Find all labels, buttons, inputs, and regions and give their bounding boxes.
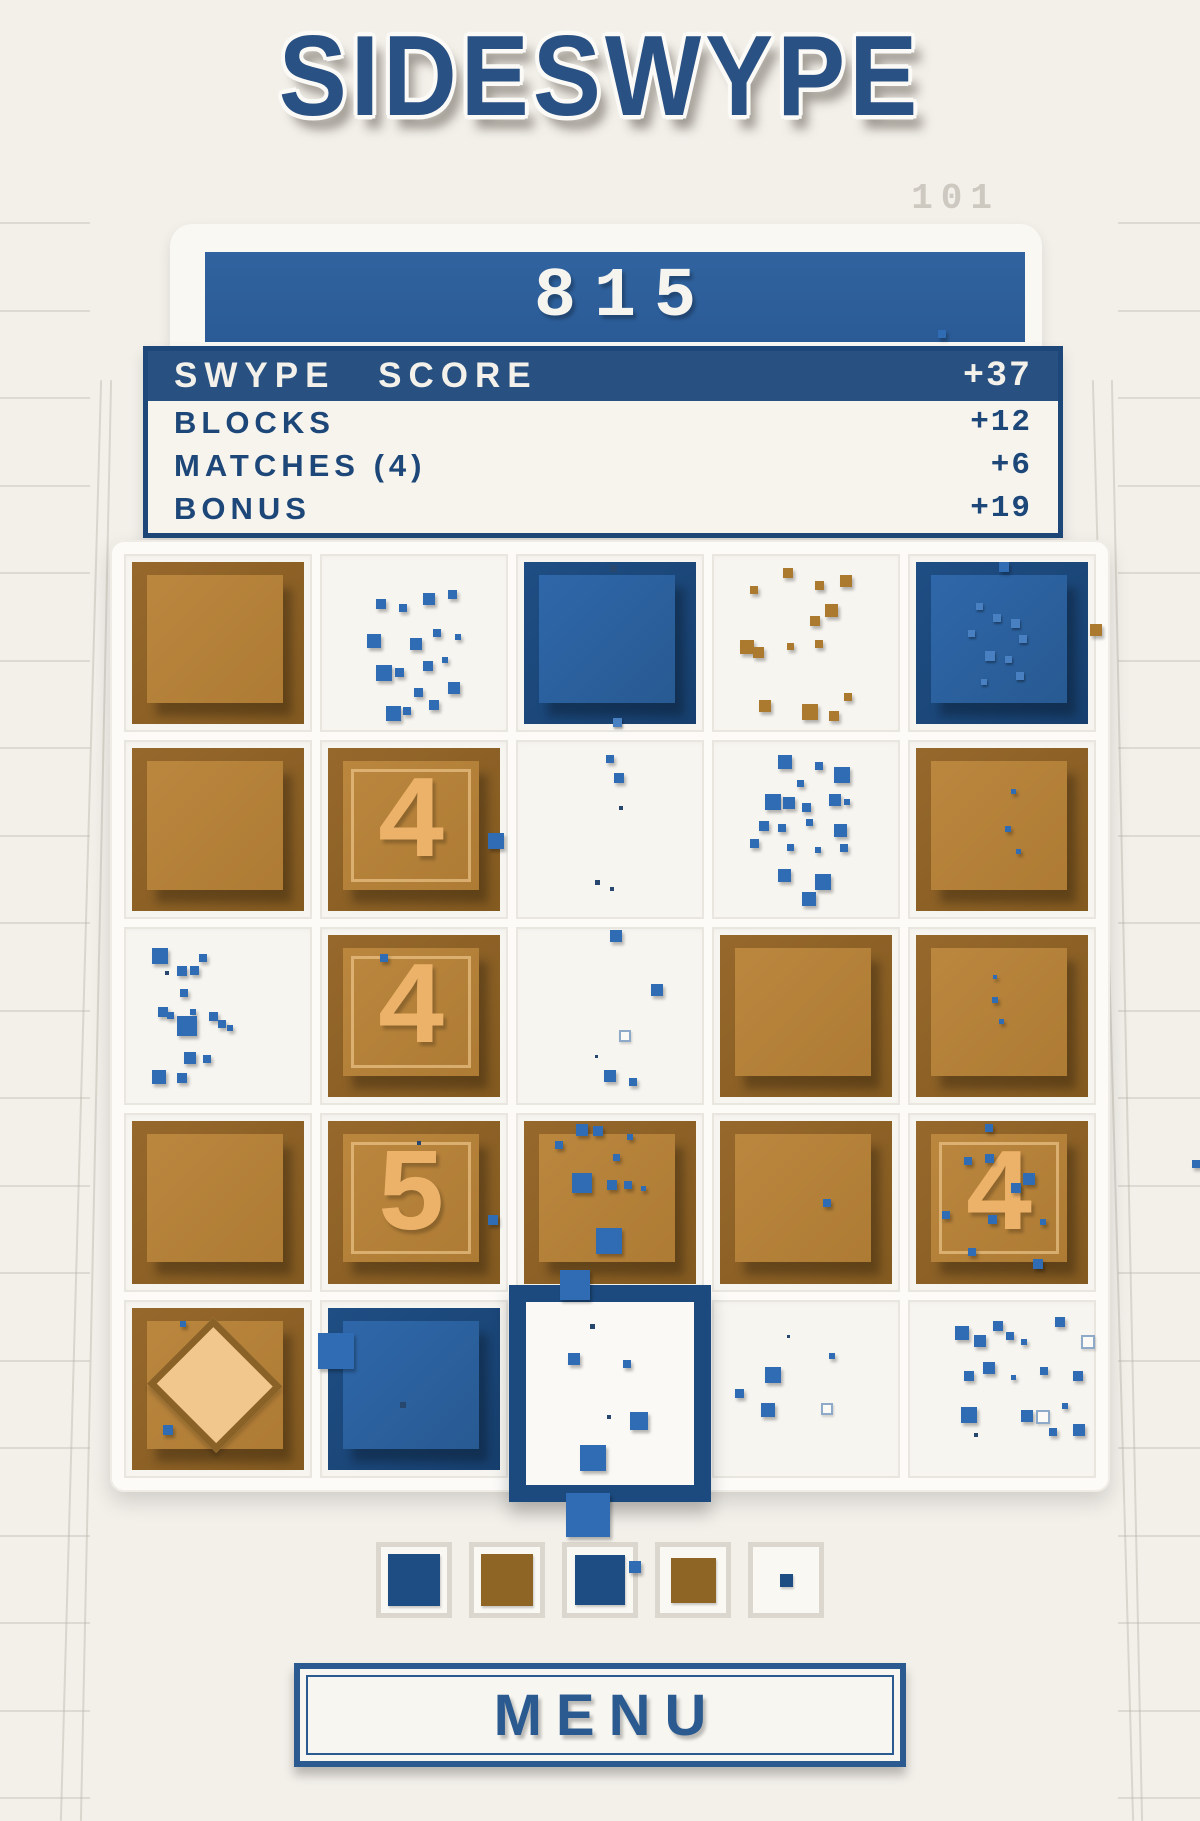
ruled-line (1118, 572, 1200, 574)
particle (829, 1353, 835, 1359)
cell-r1c1[interactable] (124, 554, 312, 732)
particle (417, 1141, 421, 1145)
particle (1033, 1259, 1043, 1269)
ruled-line (1118, 485, 1200, 487)
particle (410, 638, 422, 650)
particle (619, 1030, 631, 1042)
next-block-blue-fill (780, 1574, 793, 1587)
particle (974, 1335, 986, 1347)
particle (152, 948, 168, 964)
particle (1016, 672, 1024, 680)
block-face (931, 948, 1067, 1076)
ruled-line (0, 1622, 90, 1624)
particle (199, 954, 207, 962)
particle (568, 1353, 580, 1365)
ruled-line (1118, 1622, 1200, 1624)
block-number: 4 (376, 759, 447, 892)
particle (840, 575, 852, 587)
particle (802, 704, 818, 720)
particle (778, 755, 792, 769)
particle (976, 603, 983, 610)
particle (395, 668, 404, 677)
score-row-matches: MATCHES (4) +6 (148, 444, 1058, 487)
particle (815, 762, 823, 770)
next-block-blue-fill (575, 1555, 625, 1605)
particle (190, 1009, 196, 1015)
particle (595, 880, 600, 885)
block-brown-number-4: 4 (328, 748, 500, 910)
particle (825, 604, 838, 617)
particle (1021, 1410, 1033, 1422)
particle (1040, 1219, 1046, 1225)
particle (968, 630, 975, 637)
block-number: 5 (376, 1132, 447, 1265)
particle (829, 711, 839, 721)
particle (488, 1215, 498, 1225)
block-face: 4 (343, 761, 479, 889)
block-face (931, 575, 1067, 703)
block-face (931, 761, 1067, 889)
particle (961, 1407, 977, 1423)
particle (844, 693, 852, 701)
particle (607, 1180, 617, 1190)
particle (778, 824, 786, 832)
particle (610, 930, 622, 942)
cell-r3c3[interactable] (516, 927, 704, 1105)
particle (840, 844, 848, 852)
particle (184, 1052, 196, 1064)
ruled-line (1118, 310, 1200, 312)
particle (999, 562, 1009, 572)
ruled-line (1118, 1185, 1200, 1187)
block-brown-number-4: 4 (916, 1121, 1088, 1283)
bonus-label: BONUS (174, 491, 311, 527)
particle (993, 614, 1001, 622)
particle (964, 1371, 974, 1381)
swype-score-header: SWYPE SCORE +37 (148, 351, 1058, 401)
particle (815, 874, 831, 890)
ruled-line (0, 397, 90, 399)
blocks-label: BLOCKS (174, 405, 335, 441)
cell-r5c4[interactable] (712, 1300, 900, 1478)
particle (810, 616, 820, 626)
cell-r3c2[interactable]: 4 (320, 927, 508, 1105)
particle (829, 794, 841, 806)
particle (821, 1403, 833, 1415)
particle (629, 1078, 637, 1086)
particle (985, 1124, 993, 1132)
particle (1040, 1367, 1048, 1375)
block-blue (524, 562, 696, 724)
particle (1192, 1160, 1200, 1168)
particle (576, 1124, 588, 1136)
particle (988, 1215, 997, 1224)
particle (610, 887, 614, 891)
particle (614, 773, 624, 783)
ruled-line (0, 1447, 90, 1449)
matches-label: MATCHES (4) (174, 448, 426, 484)
game-title: SIDESWYPE (0, 11, 1200, 142)
particle (629, 1561, 641, 1573)
particle (823, 1199, 831, 1207)
particle (623, 1360, 631, 1368)
particle (386, 706, 401, 721)
cell-r2c4[interactable] (712, 740, 900, 918)
level-indicator: 101 (911, 178, 1000, 219)
block-blue (328, 1308, 500, 1470)
particle (593, 1126, 603, 1136)
ruled-line (0, 1360, 90, 1362)
particle (1006, 1332, 1014, 1340)
block-face (343, 1321, 479, 1449)
block-brown (720, 935, 892, 1097)
particle (844, 799, 850, 805)
particle (802, 892, 816, 906)
particle (566, 1493, 610, 1537)
particle (177, 1016, 197, 1036)
next-block-5 (748, 1542, 824, 1618)
particle (1005, 656, 1012, 663)
cell-r4c1[interactable] (124, 1113, 312, 1291)
particle (152, 1070, 166, 1084)
cell-r4c4[interactable] (712, 1113, 900, 1291)
block-brown (524, 1121, 696, 1283)
particle (163, 1425, 173, 1435)
block-brown (720, 1121, 892, 1283)
cell-r5c3[interactable] (516, 1300, 704, 1478)
particle (580, 1445, 606, 1471)
particle (834, 767, 850, 783)
particle (429, 700, 439, 710)
particle (993, 1321, 1003, 1331)
block-brown (916, 935, 1088, 1097)
next-block-4 (655, 1542, 731, 1618)
block-face (735, 948, 871, 1076)
cell-r2c1[interactable] (124, 740, 312, 918)
ruled-line (0, 222, 90, 224)
particle (180, 1321, 186, 1327)
particle (177, 966, 187, 976)
particle (604, 1070, 616, 1082)
particle (227, 1025, 233, 1031)
particle (1005, 826, 1011, 832)
particle (783, 568, 793, 578)
cell-r2c3[interactable] (516, 740, 704, 918)
ruled-line (1118, 222, 1200, 224)
block-face (147, 1134, 283, 1262)
block-brown (916, 748, 1088, 910)
particle (1011, 789, 1016, 794)
ruled-line (1118, 660, 1200, 662)
particle (1023, 1173, 1035, 1185)
bonus-value: +19 (970, 491, 1032, 526)
particle (218, 1020, 226, 1028)
particle (209, 1012, 218, 1021)
block-face (147, 761, 283, 889)
particle (1090, 624, 1102, 636)
particle (606, 755, 614, 763)
particle (177, 1073, 187, 1083)
cell-r1c2[interactable] (320, 554, 508, 732)
particle (203, 1055, 211, 1063)
ruled-line (1118, 747, 1200, 749)
particle (367, 634, 381, 648)
ruled-line (0, 1797, 90, 1799)
ruled-line (0, 310, 90, 312)
particle (787, 1335, 790, 1338)
matches-value: +6 (991, 448, 1032, 483)
particle (1016, 849, 1021, 854)
cell-r3c5[interactable] (908, 927, 1096, 1105)
ruled-line (0, 1535, 90, 1537)
particle (613, 1154, 620, 1161)
cell-r3c4[interactable] (712, 927, 900, 1105)
particle (1011, 619, 1020, 628)
block-brown (132, 748, 304, 910)
total-score-display: 815 (205, 252, 1025, 342)
score-row-bonus: BONUS +19 (148, 487, 1058, 530)
particle (1011, 1183, 1021, 1193)
cell-r2c5[interactable] (908, 740, 1096, 918)
particle (627, 1134, 633, 1140)
particle (993, 975, 997, 979)
particle (759, 821, 769, 831)
cell-r2c2[interactable]: 4 (320, 740, 508, 918)
particle (999, 1019, 1004, 1024)
score-row-blocks: BLOCKS +12 (148, 401, 1058, 444)
particle (750, 586, 758, 594)
block-face (735, 1134, 871, 1262)
particle (753, 647, 764, 658)
particle (765, 1367, 781, 1383)
particle (488, 833, 504, 849)
particle (399, 604, 407, 612)
cell-r1c3[interactable] (516, 554, 704, 732)
particle (981, 679, 987, 685)
particle (942, 1211, 950, 1219)
ruled-line (1118, 922, 1200, 924)
block-brown-number-4: 4 (328, 935, 500, 1097)
block-face (147, 575, 283, 703)
particle (983, 1362, 995, 1374)
particle (448, 590, 457, 599)
ruled-line (0, 485, 90, 487)
particle (750, 839, 759, 848)
particle (815, 581, 824, 590)
particle (802, 803, 811, 812)
particle (641, 1186, 646, 1191)
block-face: 4 (931, 1134, 1067, 1262)
next-blocks-row (0, 1542, 1200, 1622)
block-number: 4 (964, 1132, 1035, 1265)
particle (1021, 1339, 1027, 1345)
cell-r4c5[interactable]: 4 (908, 1113, 1096, 1291)
particle (400, 1402, 406, 1408)
particle (761, 1403, 775, 1417)
block-brown-diamond (132, 1308, 304, 1470)
game-board[interactable]: 4454 (110, 540, 1110, 1492)
particle (938, 330, 946, 338)
swype-score-label: SWYPE SCORE (174, 356, 538, 396)
particle (433, 629, 441, 637)
ruled-line (1118, 835, 1200, 837)
particle (735, 1389, 744, 1398)
particle (1019, 635, 1027, 643)
particle (180, 989, 188, 997)
game-screen: SIDESWYPE 101 815 SWYPE SCORE +37 BLOCKS… (0, 0, 1200, 1821)
particle (1062, 1403, 1068, 1409)
cell-r5c2[interactable] (320, 1300, 508, 1478)
particle (455, 634, 461, 640)
particle (630, 1412, 648, 1430)
particle (414, 688, 423, 697)
cell-r4c3[interactable] (516, 1113, 704, 1291)
ruled-line (0, 660, 90, 662)
next-block-1 (376, 1542, 452, 1618)
particle (442, 657, 448, 663)
particle (765, 794, 781, 810)
particle (555, 1141, 563, 1149)
ruled-line (0, 572, 90, 574)
next-block-3 (562, 1542, 638, 1618)
ruled-line (1118, 397, 1200, 399)
ruled-line (1118, 1097, 1200, 1099)
particle (974, 1433, 978, 1437)
particle (167, 1012, 174, 1019)
particle (165, 971, 169, 975)
cell-r1c4[interactable] (712, 554, 900, 732)
particle (318, 1333, 354, 1369)
ruled-line (1118, 1447, 1200, 1449)
particle (376, 599, 386, 609)
particle (590, 1324, 595, 1329)
next-block-brown-fill (671, 1558, 716, 1603)
particle (1073, 1424, 1085, 1436)
particle (815, 640, 823, 648)
particle (1049, 1428, 1057, 1436)
particle (992, 997, 998, 1003)
particle (740, 640, 754, 654)
particle (376, 665, 392, 681)
ruled-line (0, 922, 90, 924)
block-number: 4 (376, 945, 447, 1078)
particle (1036, 1410, 1050, 1424)
particle (651, 984, 663, 996)
cell-r1c5[interactable] (908, 554, 1096, 732)
menu-button-label: MENU (480, 1682, 721, 1749)
particle (560, 1270, 590, 1300)
particle (380, 954, 388, 962)
particle (985, 1154, 994, 1163)
particle (797, 780, 804, 787)
particle (613, 718, 622, 727)
next-block-blue-fill (388, 1554, 440, 1606)
particle (423, 593, 435, 605)
particle (1055, 1317, 1065, 1327)
ruled-line (0, 1185, 90, 1187)
block-brown (132, 1121, 304, 1283)
block-face: 5 (343, 1134, 479, 1262)
particle (1011, 1375, 1016, 1380)
block-brown-number-5: 5 (328, 1121, 500, 1283)
particle (806, 819, 813, 826)
ruled-line (0, 1710, 90, 1712)
particle (572, 1173, 592, 1193)
particle (985, 651, 995, 661)
cell-r5c5[interactable] (908, 1300, 1096, 1478)
particle (778, 869, 791, 882)
cell-r4c2[interactable]: 5 (320, 1113, 508, 1291)
block-blue (916, 562, 1088, 724)
particle (787, 844, 794, 851)
blocks-value: +12 (970, 405, 1032, 440)
swype-score-panel: SWYPE SCORE +37 BLOCKS +12 MATCHES (4) +… (143, 346, 1063, 538)
menu-button[interactable]: MENU (294, 1663, 906, 1767)
ruled-line (0, 835, 90, 837)
particle (783, 797, 795, 809)
particle (955, 1326, 969, 1340)
particle (448, 682, 460, 694)
particle (596, 1228, 622, 1254)
block-brown (132, 562, 304, 724)
next-block-brown-fill (481, 1554, 533, 1606)
ruled-line (1118, 1360, 1200, 1362)
block-face: 4 (343, 948, 479, 1076)
particle (423, 661, 433, 671)
particle (968, 1248, 976, 1256)
ruled-line (1118, 1797, 1200, 1799)
particle (190, 966, 199, 975)
particle (607, 1415, 611, 1419)
particle (1073, 1371, 1083, 1381)
particle (595, 1055, 598, 1058)
particle (834, 824, 847, 837)
swype-score-value: +37 (963, 356, 1032, 396)
particle (624, 1181, 632, 1189)
particle (610, 565, 617, 572)
particle (619, 806, 623, 810)
ruled-line (1118, 1535, 1200, 1537)
cell-r3c1[interactable] (124, 927, 312, 1105)
ruled-line (0, 1010, 90, 1012)
ruled-line (1118, 1010, 1200, 1012)
particle (403, 707, 411, 715)
block-face (539, 575, 675, 703)
ruled-line (0, 1097, 90, 1099)
particle (1081, 1335, 1095, 1349)
particle (759, 700, 771, 712)
particle (964, 1157, 972, 1165)
particle (787, 643, 794, 650)
particle (815, 847, 821, 853)
next-block-2 (469, 1542, 545, 1618)
ruled-line (0, 747, 90, 749)
selected-cell-frame (509, 1285, 711, 1502)
cell-r5c1[interactable] (124, 1300, 312, 1478)
